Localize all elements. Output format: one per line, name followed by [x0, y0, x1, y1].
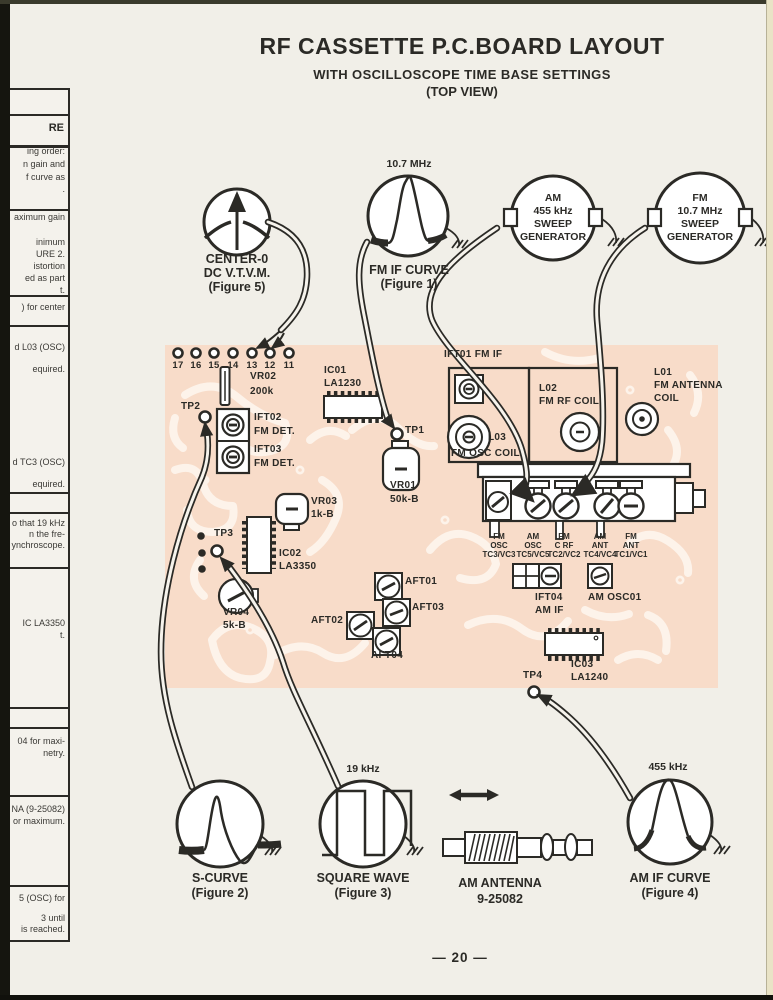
ift03-label: IFT03	[254, 445, 282, 455]
vtvm-figure-ref: (Figure 5)	[209, 281, 266, 294]
l03-function-label: FM OSC COIL	[451, 449, 520, 459]
tp1-label: TP1	[405, 426, 424, 436]
square-wave-figure-ref: (Figure 3)	[335, 887, 392, 900]
l03-label: L03	[488, 433, 506, 443]
vtvm-label-2: DC V.T.V.M.	[204, 267, 270, 280]
ift04-label: IFT04	[535, 593, 563, 603]
vr02-value-label: 200k	[250, 387, 273, 397]
tp2-label: TP2	[181, 402, 200, 412]
tp4-label: TP4	[523, 671, 542, 681]
l01-function-label: FM ANTENNA	[654, 381, 723, 391]
gang-col-label: C RF	[555, 542, 574, 550]
gang-col-label: FM	[558, 533, 570, 541]
page-number: — 20 —	[380, 950, 540, 965]
am-if-freq-label: 455 kHz	[648, 762, 687, 773]
gang-col-label: TC1/VC1	[615, 551, 648, 559]
ic03-label: IC03	[571, 660, 593, 670]
scan-edge-right	[766, 0, 773, 1000]
ic01-label: IC01	[324, 366, 346, 376]
fm-sweep-label: FM	[692, 193, 707, 204]
ift01-label: IFT01 FM IF	[444, 350, 502, 360]
l02-label: L02	[539, 384, 557, 394]
gang-col-label: TC2/VC2	[548, 551, 581, 559]
scan-edge-bottom	[0, 995, 773, 1000]
diagram-labels: CENTER-0 DC V.T.V.M. (Figure 5) 10.7 MHz…	[0, 0, 773, 1000]
am-if-figure-ref: (Figure 4)	[642, 887, 699, 900]
vr04-label: VR04	[223, 608, 249, 618]
s-curve-label: S-CURVE	[192, 872, 248, 885]
am-sweep-label: SWEEP	[534, 219, 572, 230]
am-sweep-label: GENERATOR	[520, 232, 586, 243]
pin-number: 14	[227, 361, 238, 371]
manual-page: RF CASSETTE P.C.BOARD LAYOUT WITH OSCILL…	[0, 0, 773, 1000]
am-sweep-label: AM	[545, 193, 561, 204]
tp3-label: TP3	[214, 529, 233, 539]
gang-col-label: AM	[594, 533, 606, 541]
gang-col-label: FM	[625, 533, 637, 541]
pin-number: 12	[264, 361, 275, 371]
gang-col-label: TC3/VC3	[483, 551, 516, 559]
ic01-part-label: LA1230	[324, 379, 361, 389]
square-wave-label: SQUARE WAVE	[317, 872, 410, 885]
ift03-function-label: FM DET.	[254, 459, 295, 469]
vr01-label: VR01	[390, 481, 416, 491]
ift04-function-label: AM IF	[535, 606, 564, 616]
ift02-label: IFT02	[254, 413, 282, 423]
ift02-function-label: FM DET.	[254, 427, 295, 437]
gang-col-label: ANT	[592, 542, 608, 550]
vtvm-label: CENTER-0	[206, 253, 269, 266]
fm-sweep-label: SWEEP	[681, 219, 719, 230]
pin-number: 11	[284, 361, 295, 371]
gang-col-label: TC5/VC5	[517, 551, 550, 559]
vr03-value-label: 1k-B	[311, 510, 334, 520]
l01-function-label-2: COIL	[654, 394, 679, 404]
aft03-label: AFT03	[412, 603, 444, 613]
vr04-value-label: 5k-B	[223, 621, 246, 631]
gang-col-label: ANT	[623, 542, 639, 550]
vr03-label: VR03	[311, 497, 337, 507]
l02-function-label: FM RF COIL	[539, 397, 599, 407]
pin-number: 15	[208, 361, 219, 371]
am-antenna-part-number: 9-25082	[477, 893, 523, 906]
gang-col-label: TC4/VC4	[584, 551, 617, 559]
ic03-part-label: LA1240	[571, 673, 608, 683]
fm-if-figure-ref: (Figure 1)	[381, 278, 438, 291]
aft04-label: AFT04	[371, 651, 403, 661]
vr01-value-label: 50k-B	[390, 495, 419, 505]
gang-col-label: FM	[493, 533, 505, 541]
gang-col-label: OSC	[490, 542, 507, 550]
am-osc01-label: AM OSC01	[588, 593, 642, 603]
pin-number: 13	[246, 361, 257, 371]
fm-sweep-label: 10.7 MHz	[678, 206, 723, 217]
vr02-label: VR02	[250, 372, 276, 382]
s-curve-figure-ref: (Figure 2)	[192, 887, 249, 900]
ic02-part-label: LA3350	[279, 562, 316, 572]
ic02-label: IC02	[279, 549, 301, 559]
gang-col-label: AM	[527, 533, 539, 541]
pin-number: 17	[172, 361, 183, 371]
pin-number: 16	[190, 361, 201, 371]
scan-edge-top	[0, 0, 773, 4]
scan-edge-left	[0, 0, 10, 1000]
aft02-label: AFT02	[311, 616, 343, 626]
am-antenna-label: AM ANTENNA	[458, 877, 542, 890]
fm-sweep-label: GENERATOR	[667, 232, 733, 243]
fm-if-freq-label: 10.7 MHz	[387, 159, 432, 170]
am-if-curve-label: AM IF CURVE	[629, 872, 710, 885]
am-sweep-label: 455 kHz	[533, 206, 572, 217]
aft01-label: AFT01	[405, 577, 437, 587]
square-wave-freq-label: 19 kHz	[346, 764, 379, 775]
fm-if-curve-label: FM IF CURVE	[369, 264, 449, 277]
gang-col-label: OSC	[524, 542, 541, 550]
l01-label: L01	[654, 368, 672, 378]
